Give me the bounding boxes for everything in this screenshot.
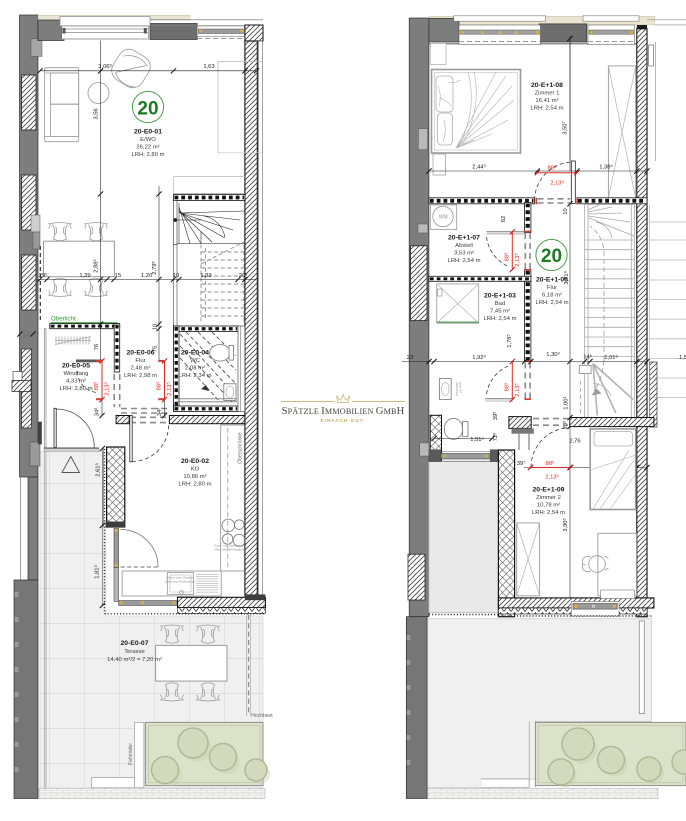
svg-text:Abstell: Abstell	[455, 243, 473, 249]
svg-text:EINFACH GUT.: EINFACH GUT.	[320, 418, 365, 423]
svg-text:10: 10	[153, 324, 159, 330]
svg-text:20-E0-04: 20-E0-04	[181, 350, 209, 357]
svg-text:Oberschränke: Oberschränke	[238, 432, 244, 464]
svg-text:10: 10	[173, 273, 179, 279]
svg-text:Flur: Flur	[135, 358, 145, 364]
svg-text:1,20: 1,20	[141, 273, 152, 279]
svg-text:Zimmer 1: Zimmer 1	[535, 91, 560, 97]
svg-text:20-E+1-03: 20-E+1-03	[484, 293, 516, 300]
svg-text:2,76: 2,76	[569, 439, 580, 445]
svg-text:20-E0-06: 20-E0-06	[127, 350, 155, 357]
svg-text:LRH: 2,34 m: LRH: 2,34 m	[178, 373, 211, 379]
svg-text:Terasse: Terasse	[124, 649, 145, 655]
svg-text:LRH: 2,54 m: LRH: 2,54 m	[530, 106, 563, 112]
svg-text:20-E0-07: 20-E0-07	[121, 640, 149, 647]
svg-text:Fahrräder: Fahrräder	[128, 743, 134, 765]
svg-text:6,18 m²: 6,18 m²	[542, 293, 562, 299]
svg-text:SPÄTZLE IMMOBILIEN GMBH: SPÄTZLE IMMOBILIEN GMBH	[282, 406, 405, 417]
svg-text:3,56: 3,56	[94, 108, 100, 119]
svg-text:10,78 m²: 10,78 m²	[537, 503, 560, 509]
svg-text:20-E+1-09: 20-E+1-09	[533, 487, 565, 494]
svg-text:20-E0-01: 20-E0-01	[134, 129, 162, 136]
svg-text:10,86 m²: 10,86 m²	[183, 474, 206, 480]
svg-text:E/WO: E/WO	[140, 137, 156, 143]
svg-text:Hochbeet: Hochbeet	[251, 713, 273, 719]
svg-text:LRH: 2,54 m: LRH: 2,54 m	[535, 300, 568, 306]
svg-text:20: 20	[541, 246, 562, 267]
svg-text:82: 82	[501, 216, 507, 222]
svg-text:Oberlicht: Oberlicht	[51, 316, 76, 323]
svg-text:LRH: 2,80 m: LRH: 2,80 m	[131, 152, 164, 158]
svg-text:1,5: 1,5	[679, 355, 686, 361]
svg-text:KO: KO	[191, 467, 200, 473]
svg-text:LRH: 2,98 m: LRH: 2,98 m	[124, 373, 157, 379]
svg-text:23: 23	[407, 355, 413, 361]
svg-text:WC: WC	[190, 358, 201, 364]
svg-text:LRH: 2,54 m: LRH: 2,54 m	[532, 510, 565, 516]
svg-text:26,22 m²: 26,22 m²	[136, 145, 159, 151]
svg-text:LRH: 2,80 m: LRH: 2,80 m	[178, 482, 211, 488]
svg-text:Zimmer 2: Zimmer 2	[536, 495, 561, 501]
svg-text:Herd sep. Arbeitsplatte: Herd sep. Arbeitsplatte	[215, 548, 246, 552]
svg-text:76: 76	[94, 344, 100, 350]
svg-text:27: 27	[23, 334, 29, 340]
svg-text:2,48 m²: 2,48 m²	[131, 366, 151, 372]
svg-text:siehe sep. Küchenplan: siehe sep. Küchenplan	[165, 580, 196, 584]
svg-text:Windfang: Windfang	[64, 371, 89, 377]
svg-text:10: 10	[563, 208, 569, 214]
svg-text:14,40 m²/2 = 7,20 m²: 14,40 m²/2 = 7,20 m²	[107, 657, 162, 663]
svg-text:20-E0-02: 20-E0-02	[181, 458, 209, 465]
svg-text:15: 15	[115, 273, 121, 279]
svg-text:LRH: 2,54 m: LRH: 2,54 m	[483, 316, 516, 322]
svg-text:WM: WM	[439, 215, 448, 221]
svg-text:20: 20	[137, 99, 158, 120]
svg-text:7,45 m²: 7,45 m²	[490, 309, 510, 315]
svg-text:1,33: 1,33	[200, 273, 211, 279]
svg-text:2,08 m²: 2,08 m²	[185, 366, 205, 372]
svg-text:Waschtisch: Waschtisch	[455, 382, 459, 397]
svg-text:20-E+1-08: 20-E+1-08	[531, 82, 563, 89]
svg-text:unter WT: unter WT	[459, 382, 463, 394]
svg-text:20-E+1-07: 20-E+1-07	[448, 235, 480, 242]
svg-text:Flur: Flur	[547, 285, 557, 291]
svg-text:16,41 m²: 16,41 m²	[535, 98, 558, 104]
svg-text:1,39: 1,39	[79, 273, 90, 279]
svg-text:LRH: 2,54 m: LRH: 2,54 m	[447, 258, 480, 264]
svg-text:75: 75	[153, 346, 159, 352]
svg-text:4,33 m²: 4,33 m²	[66, 379, 86, 385]
svg-text:3,53 m²: 3,53 m²	[454, 251, 474, 257]
svg-text:1,63: 1,63	[203, 64, 214, 70]
svg-text:LRH: 2,80 m: LRH: 2,80 m	[59, 386, 92, 392]
svg-text:20-E0-05: 20-E0-05	[62, 363, 90, 370]
svg-text:Bad: Bad	[495, 301, 505, 307]
